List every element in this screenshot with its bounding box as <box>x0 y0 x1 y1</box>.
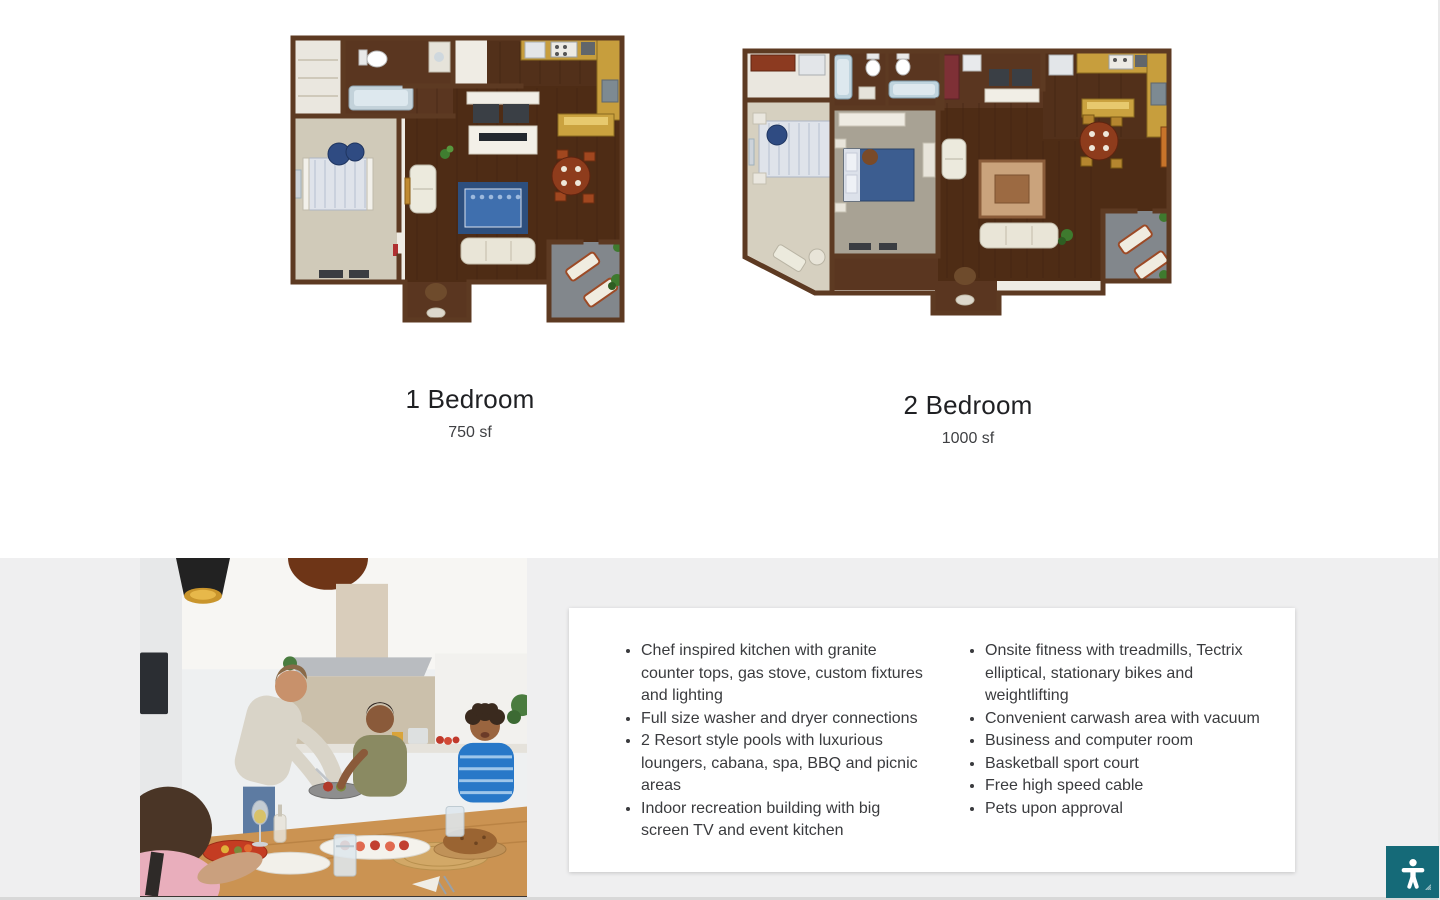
sofa <box>980 223 1058 248</box>
floor-mat <box>319 270 343 278</box>
floorplan-1br-image <box>285 30 630 327</box>
floorplan-1br-size: 750 sf <box>320 424 620 442</box>
floorplan-1br-title: 1 Bedroom <box>320 384 620 415</box>
amenity-item: Free high speed cable <box>985 775 1269 798</box>
dining-set <box>1080 115 1122 168</box>
amenity-item: Indoor recreation building with big scre… <box>641 798 931 843</box>
amenity-item: 2 Resort style pools with luxurious loun… <box>641 730 931 798</box>
floor-mat <box>849 243 871 250</box>
accessibility-widget-button[interactable] <box>1386 846 1439 898</box>
page: 1 Bedroom 750 sf 2 Bedroom 1000 sf <box>0 0 1440 900</box>
amenity-item: Pets upon approval <box>985 798 1269 821</box>
floorplan-2br-size: 1000 sf <box>818 430 1118 448</box>
entry-closet <box>747 53 830 98</box>
tv <box>140 652 168 714</box>
accessibility-person-icon <box>1395 854 1431 890</box>
mirror <box>405 178 410 204</box>
sofa <box>461 238 535 264</box>
amenity-item: Convenient carwash area with vacuum <box>985 708 1269 731</box>
tv-console <box>985 69 1039 102</box>
corner-grip-stripes <box>1425 885 1430 890</box>
bed-second <box>835 139 914 212</box>
dresser <box>923 143 935 177</box>
amenities-columns: Chef inspired kitchen with granite count… <box>569 608 1295 843</box>
hood-chimney <box>336 584 388 660</box>
amenities-section: Chef inspired kitchen with granite count… <box>0 558 1440 900</box>
area-rug <box>980 161 1044 217</box>
amenities-list-left: Chef inspired kitchen with granite count… <box>625 640 931 843</box>
amenity-item: Chef inspired kitchen with granite count… <box>641 640 931 708</box>
amenity-item: Onsite fitness with treadmills, Tectrix … <box>985 640 1269 708</box>
floorplan-1br-drawing <box>285 30 630 327</box>
dining-set <box>552 150 595 203</box>
wall-art <box>295 170 301 198</box>
floorplan-2br-image <box>737 43 1177 320</box>
closet <box>295 40 341 114</box>
floorplans-section: 1 Bedroom 750 sf 2 Bedroom 1000 sf <box>0 0 1440 558</box>
floorplan-2br-title: 2 Bedroom <box>818 390 1118 421</box>
closet-shelf <box>839 113 905 126</box>
amenity-item: Full size washer and dryer connections <box>641 708 931 731</box>
amenity-item: Business and computer room <box>985 730 1269 753</box>
amenities-list-right: Onsite fitness with treadmills, Tectrix … <box>969 640 1269 843</box>
entry-rug <box>425 283 447 301</box>
amenity-item: Basketball sport court <box>985 753 1269 776</box>
amenities-card: Chef inspired kitchen with granite count… <box>569 608 1295 872</box>
extractor-hood <box>290 657 432 676</box>
floorplan-2br-drawing <box>737 43 1177 320</box>
armchair <box>942 139 966 179</box>
entry-rug <box>954 267 976 285</box>
family-dinner-photo <box>140 558 527 898</box>
area-rug <box>458 182 528 234</box>
wall-art <box>749 139 754 165</box>
tv-console <box>467 92 539 154</box>
armchair <box>410 165 436 213</box>
bed-master <box>753 113 831 184</box>
family-dinner-illustration <box>140 558 527 896</box>
floorplan-1br-caption: 1 Bedroom 750 sf <box>320 384 620 442</box>
floorplan-2br-caption: 2 Bedroom 1000 sf <box>818 390 1118 448</box>
